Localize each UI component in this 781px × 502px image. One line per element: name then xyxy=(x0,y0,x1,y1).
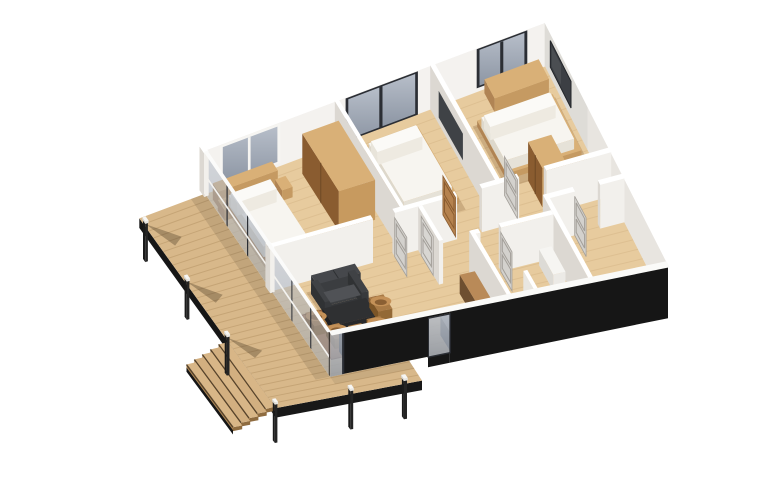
floor-plan-render xyxy=(0,0,781,502)
render-canvas xyxy=(0,0,781,502)
